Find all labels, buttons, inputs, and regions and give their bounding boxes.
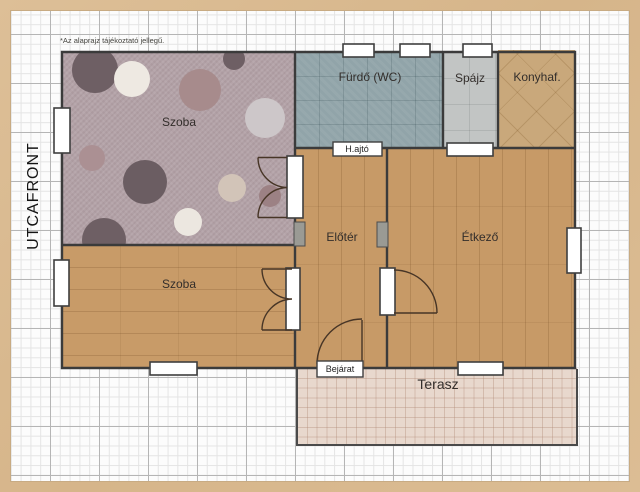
room-eloter xyxy=(295,148,387,368)
disclaimer-note: *Az alaprajz tájékoztató jellegű. xyxy=(60,36,164,45)
room-etkezo xyxy=(387,148,575,368)
street-front-text: UTCAFRONT xyxy=(25,142,43,250)
room-furdo xyxy=(295,52,443,148)
room-konyha xyxy=(498,50,575,150)
room-szoba-bottom xyxy=(62,245,295,368)
room-szoba-top xyxy=(62,52,295,245)
carpet-dot-pattern xyxy=(62,52,295,245)
room-terasz xyxy=(297,368,577,445)
room-spajz xyxy=(443,52,498,150)
floorplan-image: *Az alaprajz tájékoztató jellegű. UTCAFR… xyxy=(0,0,640,492)
